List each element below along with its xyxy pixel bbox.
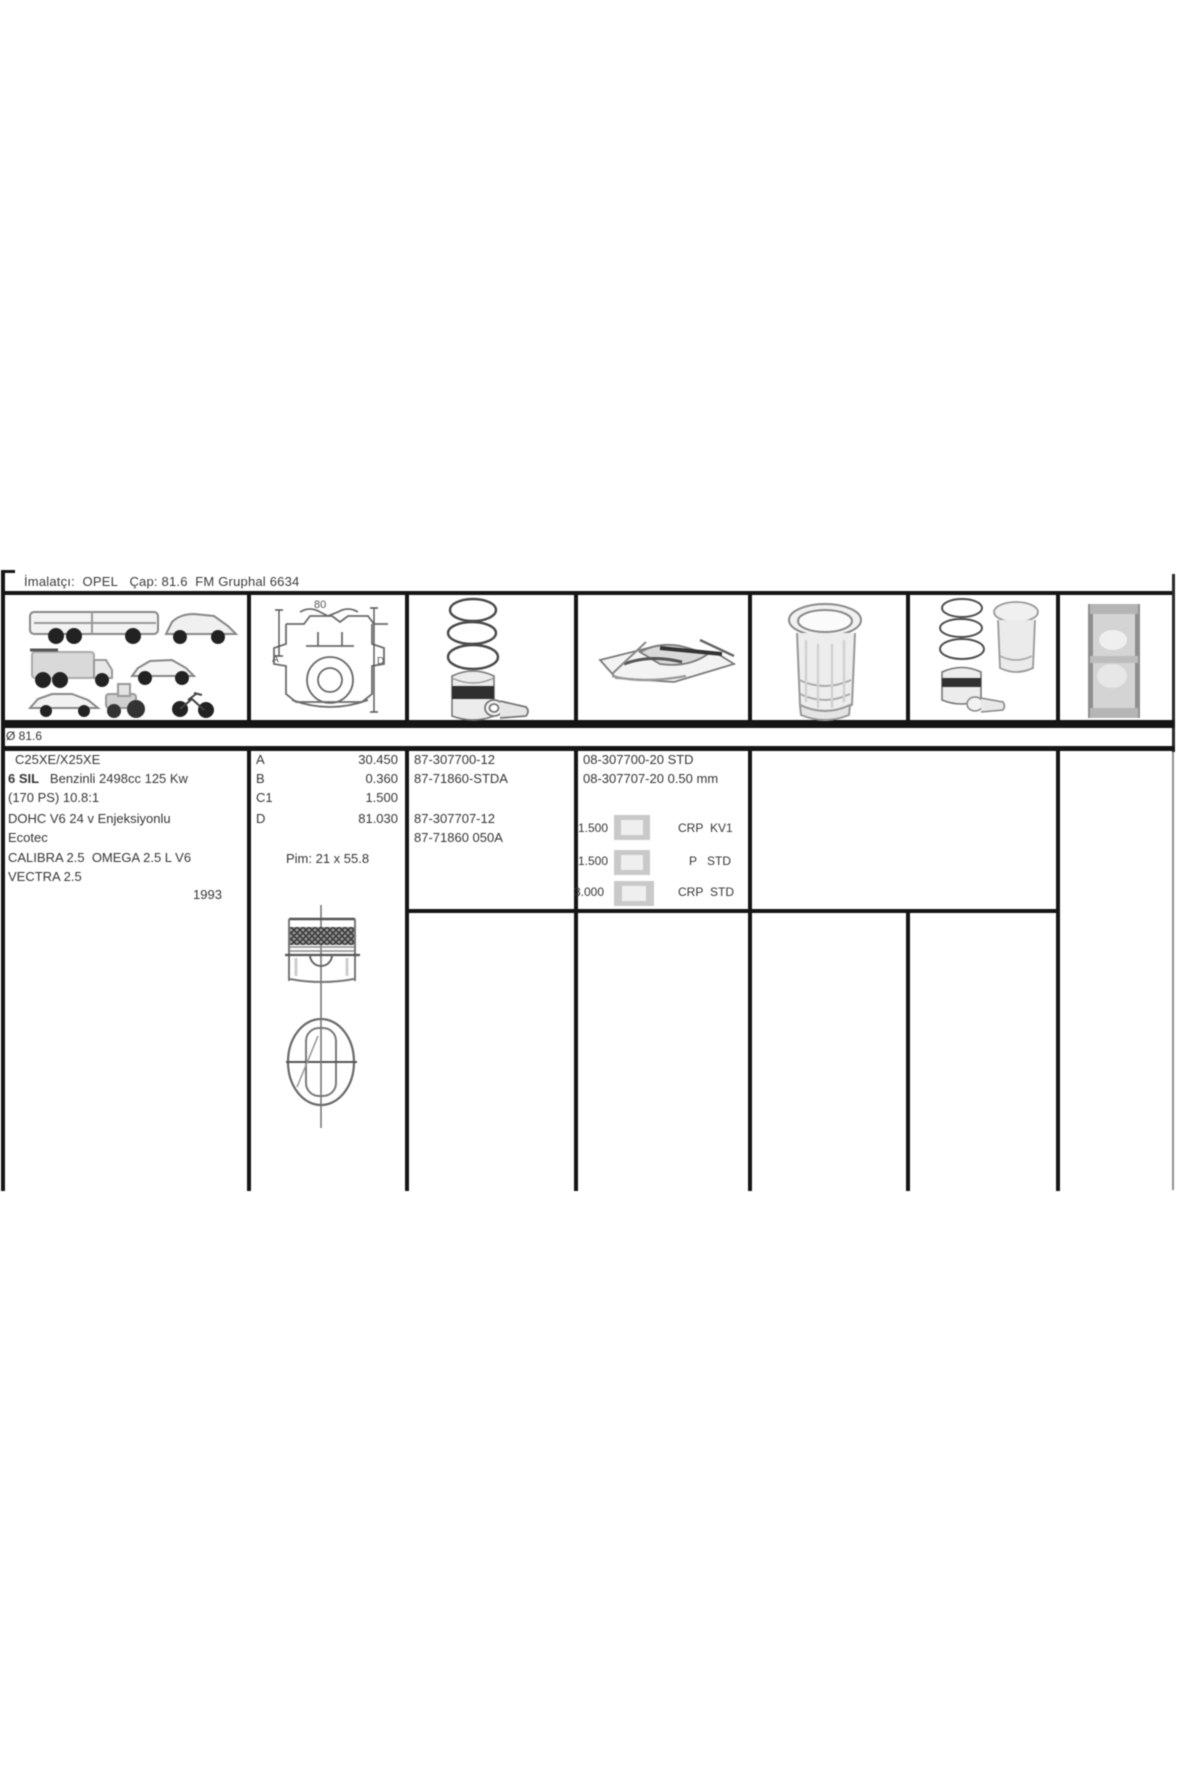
svg-text:A: A — [272, 654, 279, 665]
svg-text:D: D — [377, 656, 384, 667]
